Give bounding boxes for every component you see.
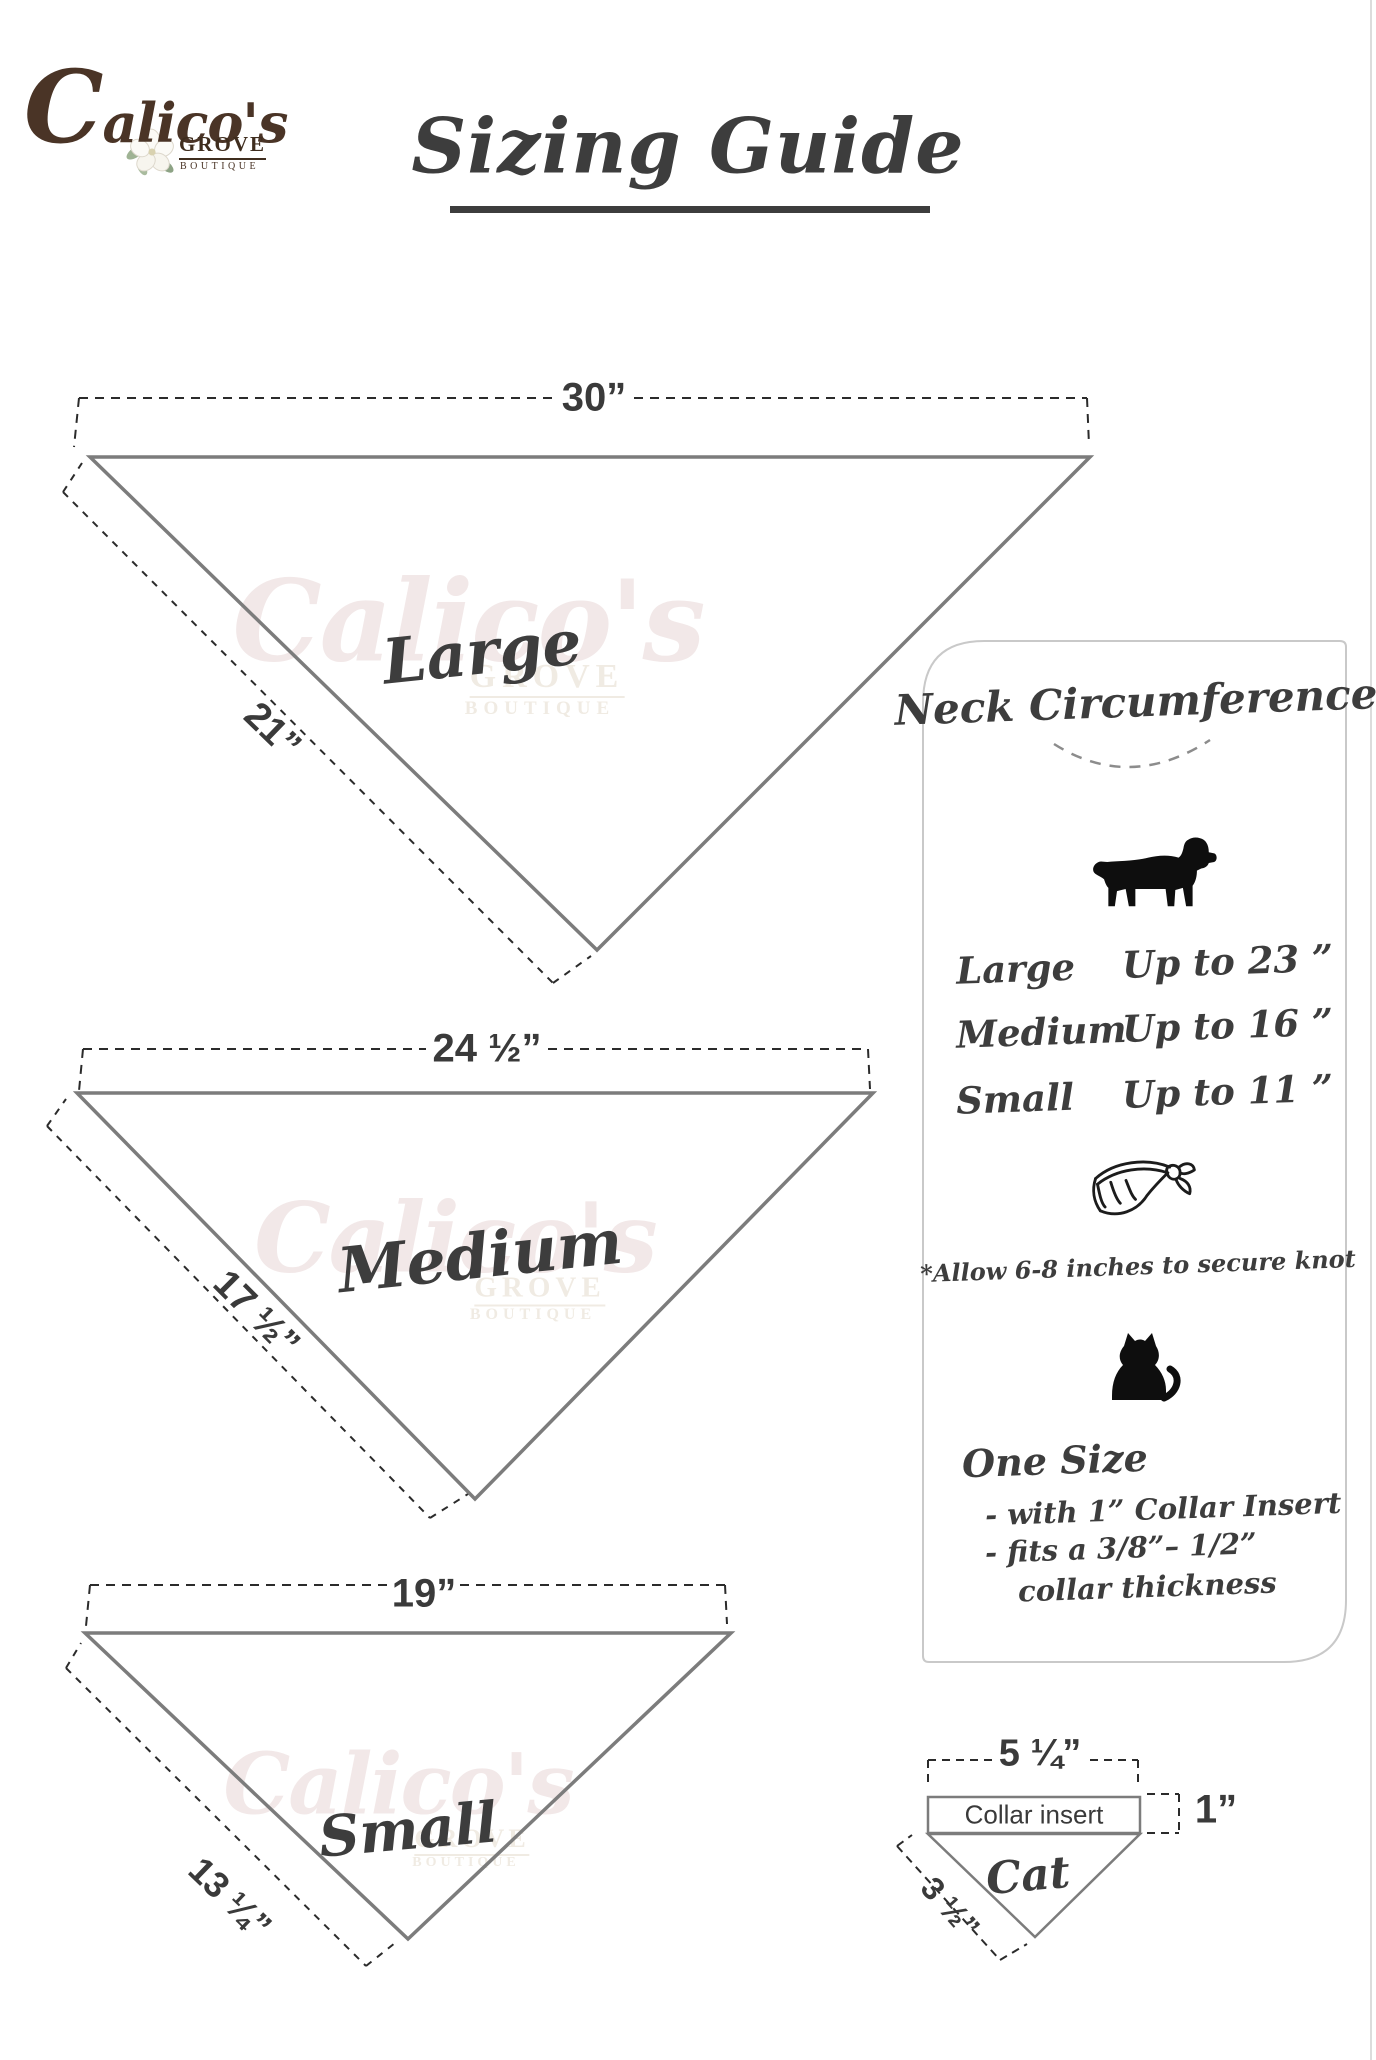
page-title: Sizing Guide — [411, 102, 964, 191]
dim-tick — [79, 1049, 83, 1091]
large-top-width-label: 30” — [562, 376, 627, 421]
sizing-guide-page: { "logo": { "name": "Calico's", "grove":… — [0, 0, 1376, 2060]
dim-tick — [725, 1585, 727, 1624]
dim-tick — [366, 1943, 395, 1966]
logo-boutique-text: BOUTIQUE — [180, 161, 259, 172]
one-size-heading: One Size — [961, 1435, 1148, 1486]
size-value: Up to 23 ” — [1121, 936, 1334, 987]
insert-height-label: 1” — [1195, 1788, 1237, 1833]
small-bandana-diagram — [66, 1585, 727, 1966]
dim-tick — [868, 1049, 870, 1089]
dim-tick — [1000, 1944, 1027, 1960]
size-value: Up to 16 ” — [1121, 1000, 1334, 1051]
dim-tick — [74, 398, 79, 447]
medium-triangle — [77, 1093, 873, 1499]
dim-tick — [553, 956, 591, 983]
title-underline — [450, 206, 930, 213]
collar-insert-label: Collar insert — [965, 1800, 1104, 1831]
small-top-width-label: 19” — [392, 1572, 457, 1617]
cat-top-width-label: 5 ¼” — [999, 1733, 1081, 1776]
size-name: Small — [955, 1073, 1122, 1123]
dim-tick — [1087, 398, 1089, 445]
size-value: Up to 11 ” — [1121, 1066, 1334, 1117]
dim-tick — [86, 1585, 90, 1626]
medium-top-width-label: 24 ½” — [433, 1027, 542, 1072]
dim-tick — [66, 1643, 81, 1668]
dim-tick — [63, 463, 82, 492]
dim-tick — [897, 1835, 912, 1846]
small-triangle — [85, 1633, 731, 1939]
logo-grove-text: GROVE — [179, 132, 266, 160]
dim-tick — [47, 1099, 66, 1126]
dim-tick — [430, 1494, 468, 1518]
cat-size-label: Cat — [984, 1847, 1072, 1905]
size-name: Medium — [955, 1007, 1122, 1057]
size-name: Large — [955, 943, 1122, 993]
